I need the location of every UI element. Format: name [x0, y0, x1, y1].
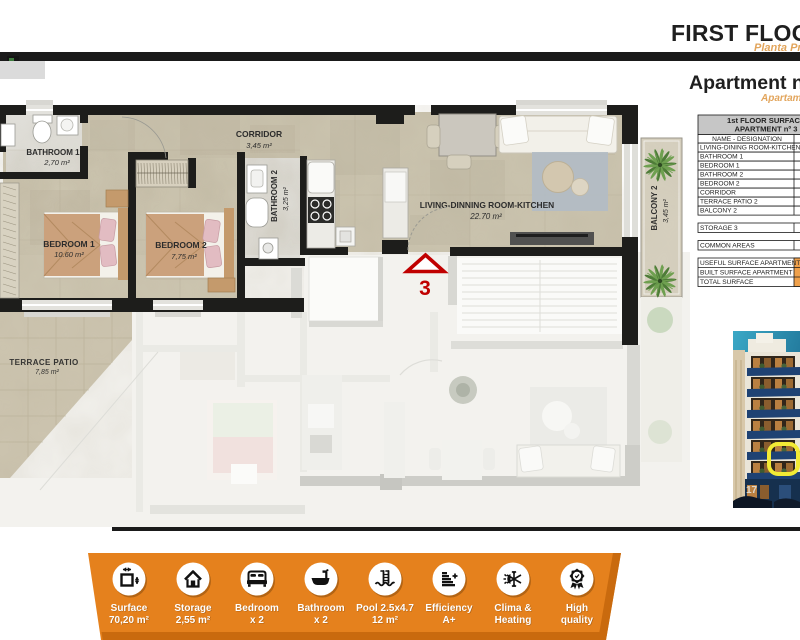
svg-text:7,75 m²: 7,75 m²	[171, 252, 197, 261]
svg-text:Heating: Heating	[495, 615, 532, 626]
svg-text:x 2: x 2	[250, 615, 264, 626]
svg-text:3: 3	[419, 277, 431, 300]
svg-text:TOTAL SURFACE: TOTAL SURFACE	[700, 279, 754, 286]
svg-text:70,20 m²: 70,20 m²	[109, 615, 150, 626]
svg-text:Efficiency: Efficiency	[425, 603, 473, 614]
svg-text:Storage: Storage	[174, 603, 212, 614]
svg-text:quality: quality	[561, 615, 594, 626]
svg-text:Surface: Surface	[111, 603, 148, 614]
svg-text:BALCONY 2: BALCONY 2	[700, 208, 737, 215]
svg-text:CORRIDOR: CORRIDOR	[700, 190, 736, 197]
svg-text:STORAGE 3: STORAGE 3	[700, 225, 738, 232]
svg-text:A+: A+	[442, 615, 455, 626]
svg-text:Pool 2.5x4.7: Pool 2.5x4.7	[356, 603, 414, 614]
svg-text:BATHROOM 2: BATHROOM 2	[270, 169, 279, 221]
svg-text:2,55 m²: 2,55 m²	[176, 615, 211, 626]
svg-text:3,25 m²: 3,25 m²	[283, 186, 290, 210]
svg-text:BEDROOM 1: BEDROOM 1	[700, 163, 740, 170]
svg-text:BEDROOM 1: BEDROOM 1	[43, 239, 95, 249]
svg-text:3,45 m²: 3,45 m²	[246, 141, 272, 150]
svg-text:APARTMENT nº 3: APARTMENT nº 3	[735, 125, 798, 134]
svg-text:NAME - DESIGNATION: NAME - DESIGNATION	[712, 136, 782, 143]
svg-text:BATHROOM 1: BATHROOM 1	[26, 148, 80, 157]
svg-text:USEFUL SURFACE APARTMENT: USEFUL SURFACE APARTMENT	[700, 260, 800, 267]
svg-text:22.70 m²: 22.70 m²	[469, 212, 502, 221]
svg-text:Clima &: Clima &	[494, 603, 531, 614]
svg-text:TERRACE PATIO 2: TERRACE PATIO 2	[700, 199, 758, 206]
svg-text:17: 17	[746, 485, 758, 496]
svg-text:COMMON AREAS: COMMON AREAS	[700, 242, 755, 249]
svg-text:12 m²: 12 m²	[372, 615, 399, 626]
svg-text:BEDROOM 2: BEDROOM 2	[700, 181, 740, 188]
svg-text:Apartment nº 3: Apartment nº 3	[689, 72, 800, 94]
svg-text:CORRIDOR: CORRIDOR	[236, 129, 282, 139]
svg-text:LIVING-DINING ROOM-KITCHEN: LIVING-DINING ROOM-KITCHEN	[700, 145, 800, 152]
svg-text:Bathroom: Bathroom	[297, 603, 344, 614]
svg-text:BATHROOM 2: BATHROOM 2	[700, 172, 743, 179]
svg-text:Apartamento nº 3: Apartamento nº 3	[760, 93, 800, 104]
svg-text:Planta Primera: Planta Primera	[754, 42, 800, 54]
svg-text:High: High	[566, 603, 588, 614]
svg-text:10.60 m²: 10.60 m²	[54, 250, 84, 259]
svg-text:BATHROOM 1: BATHROOM 1	[700, 154, 743, 161]
svg-text:x 2: x 2	[314, 615, 328, 626]
svg-text:Bedroom: Bedroom	[235, 603, 279, 614]
svg-text:2,70 m²: 2,70 m²	[43, 158, 70, 167]
svg-text:BUILT SURFACE APARTMENT: BUILT SURFACE APARTMENT	[700, 269, 793, 276]
svg-text:BEDROOM 2: BEDROOM 2	[155, 240, 207, 250]
